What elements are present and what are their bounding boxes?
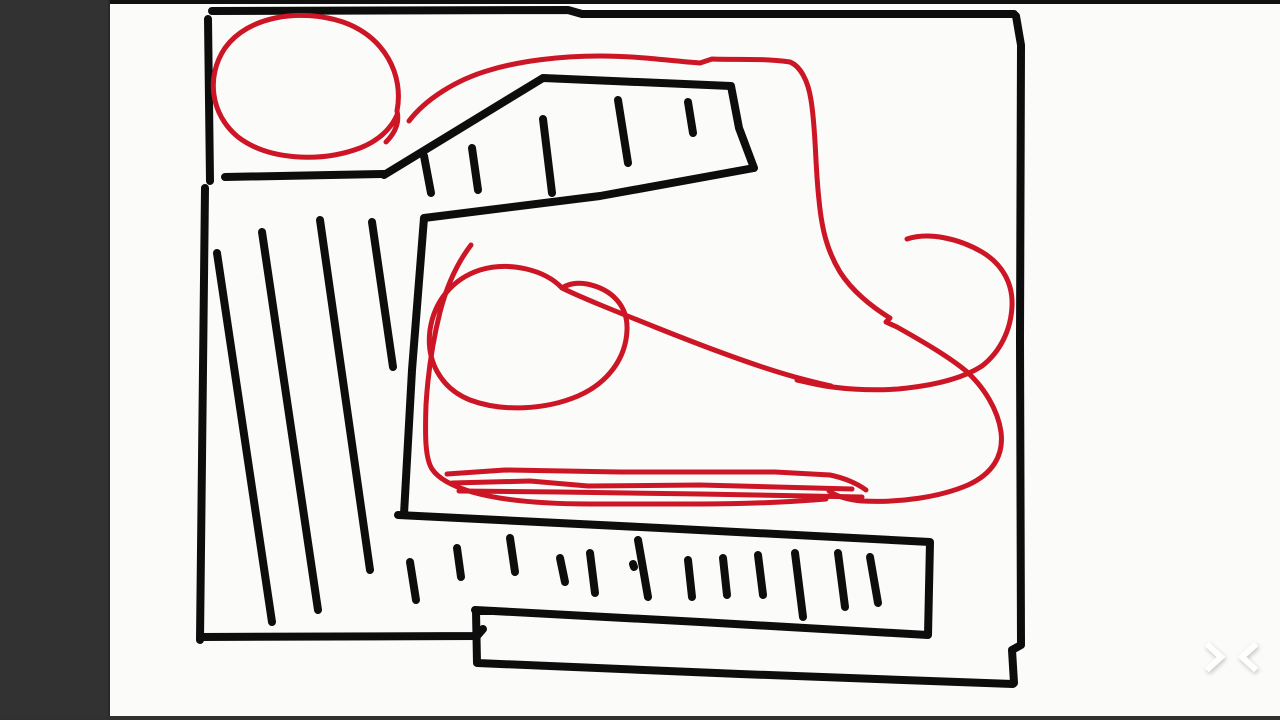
red-sole-line-2 bbox=[452, 481, 852, 489]
red-swoosh-descender bbox=[409, 56, 1001, 501]
app-frame bbox=[0, 0, 1280, 720]
hatch-line-2 bbox=[262, 232, 318, 610]
hatch-line-4 bbox=[372, 222, 393, 367]
ruler-bottom-tick-10 bbox=[795, 553, 803, 617]
red-oval-and-tail bbox=[429, 266, 831, 407]
left-sidebar-panel bbox=[0, 0, 110, 716]
page-nav-controls bbox=[1204, 641, 1259, 673]
ruler-bottom-tick-2 bbox=[457, 548, 461, 577]
chevron-right-icon[interactable] bbox=[1204, 641, 1228, 673]
ruler-bottom-tick-1 bbox=[410, 562, 416, 600]
ruler-top-tick-5 bbox=[688, 102, 693, 133]
ruler-top-tick-4 bbox=[618, 100, 628, 163]
drawing-svg bbox=[110, 4, 1280, 716]
ruler-top-tick-2 bbox=[472, 148, 478, 190]
ruler-top-tick-3 bbox=[543, 119, 552, 193]
border-left-upper bbox=[208, 19, 210, 181]
ruler-bottom-tick-3 bbox=[510, 538, 515, 572]
red-sole-line-3 bbox=[459, 491, 862, 497]
ruler-bottom-tick-4 bbox=[560, 558, 565, 582]
drawing-canvas[interactable] bbox=[110, 4, 1280, 716]
ruler-bottom-tick-6 bbox=[638, 540, 648, 597]
border-right bbox=[1012, 16, 1021, 683]
ruler-bottom-dot bbox=[633, 564, 634, 567]
red-heel-and-sole-outline bbox=[426, 245, 826, 504]
shelf-line bbox=[225, 174, 384, 177]
red-circle-top-left bbox=[213, 15, 398, 157]
ruler-bottom-tick-7 bbox=[688, 560, 692, 597]
ruler-bottom-tick-12 bbox=[870, 557, 878, 603]
ruler-top-tick-1 bbox=[424, 156, 431, 193]
ruler-top-outline bbox=[384, 78, 754, 514]
border-left-lower bbox=[200, 188, 205, 640]
ruler-bottom-tick-5 bbox=[590, 553, 595, 593]
sketch-strokes bbox=[200, 10, 1021, 684]
border-bottom-left bbox=[201, 629, 483, 637]
hatch-line-3 bbox=[320, 220, 370, 570]
border-top bbox=[212, 10, 1014, 14]
ruler-bottom-tick-11 bbox=[838, 553, 845, 607]
hatch-line-1 bbox=[217, 253, 272, 622]
red-right-hook bbox=[797, 236, 1012, 390]
ruler-bottom-tick-8 bbox=[723, 558, 727, 595]
bottom-strip bbox=[0, 716, 1280, 720]
chevron-left-icon[interactable] bbox=[1235, 641, 1259, 673]
ruler-bottom-tick-9 bbox=[758, 555, 763, 595]
